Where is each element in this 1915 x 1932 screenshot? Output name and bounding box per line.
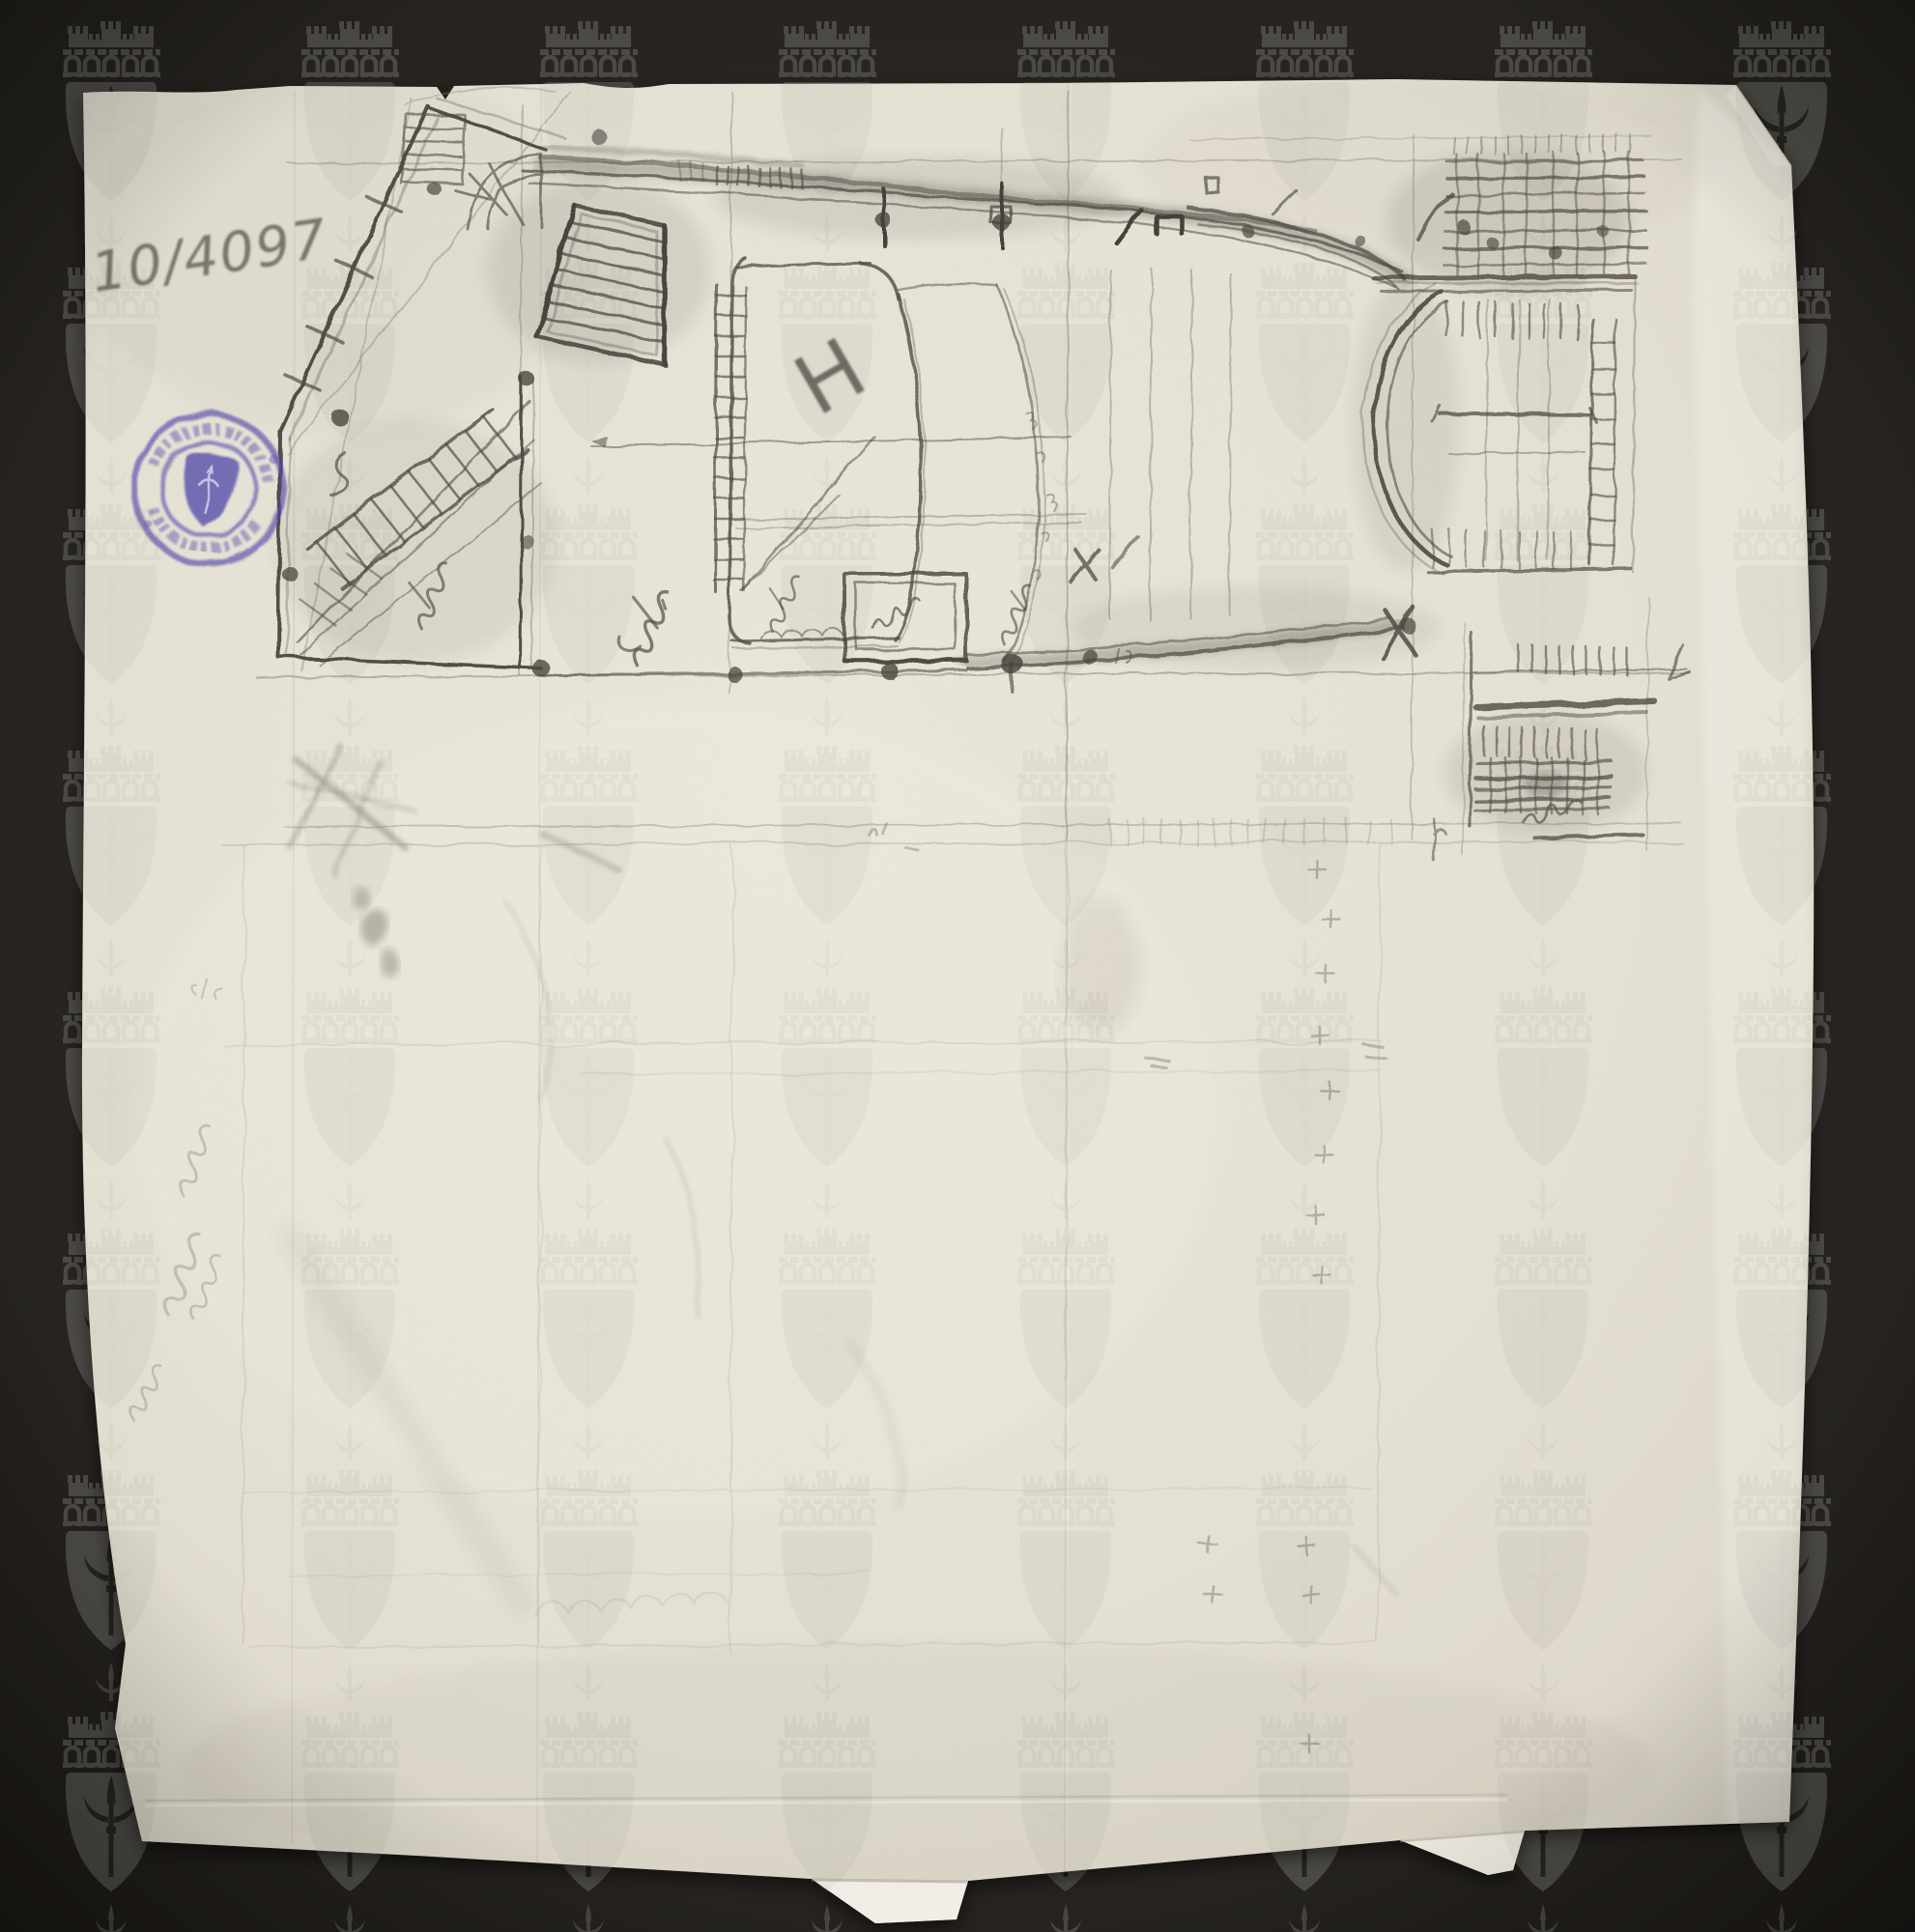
archival-scan-page: H	[0, 0, 1915, 1932]
scan-image: H	[0, 0, 1915, 1932]
